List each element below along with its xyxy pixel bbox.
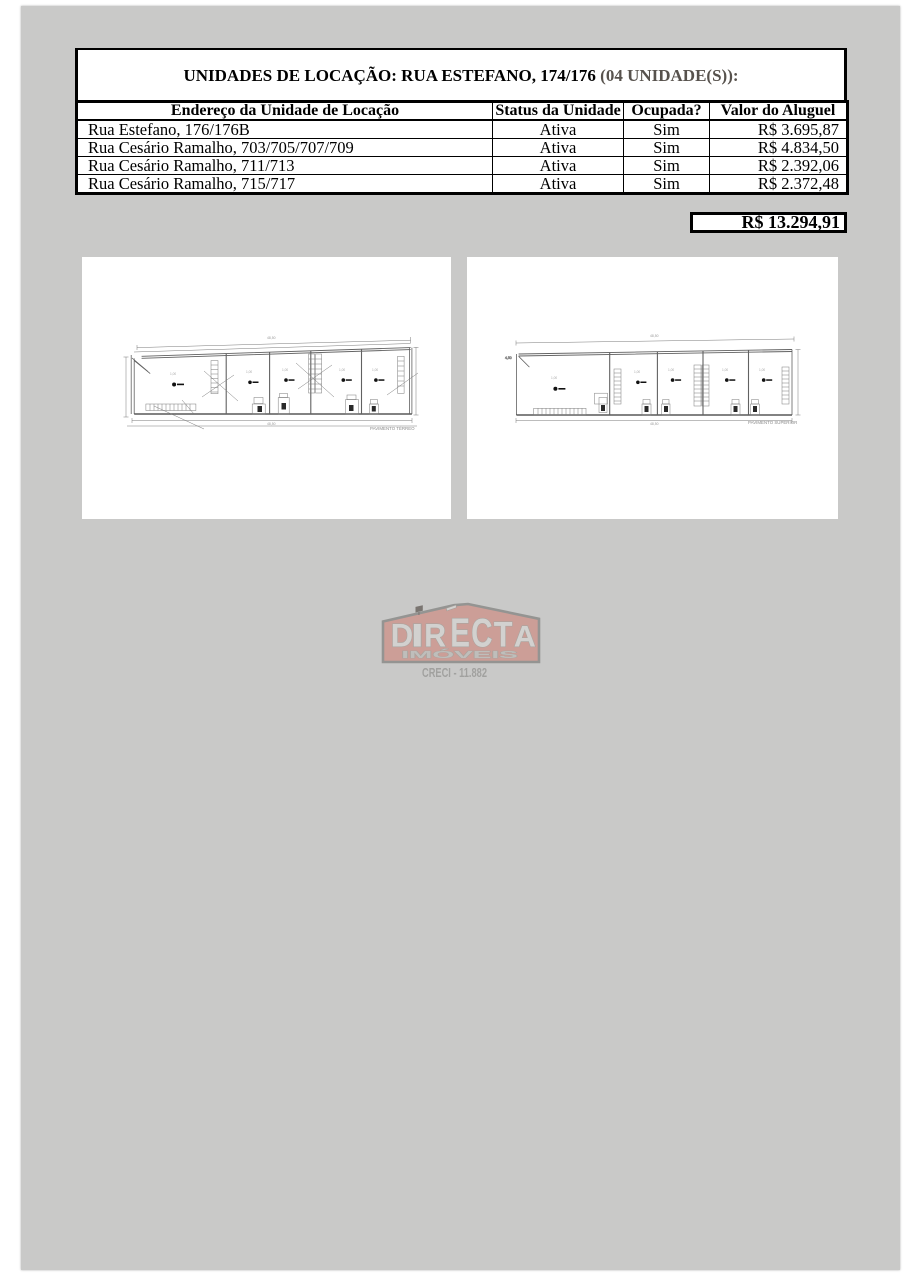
svg-text:PAVIMENTO SUPERIOR: PAVIMENTO SUPERIOR <box>748 420 797 425</box>
svg-text:48,50: 48,50 <box>267 336 276 340</box>
svg-text:1,00: 1,00 <box>551 376 557 380</box>
svg-text:48,50: 48,50 <box>267 422 276 426</box>
svg-text:PAVIMENTO TÉRREO: PAVIMENTO TÉRREO <box>370 426 415 431</box>
svg-text:CRECI - 11.882: CRECI - 11.882 <box>422 666 487 680</box>
svg-text:48,50: 48,50 <box>650 334 659 338</box>
svg-text:1,00: 1,00 <box>170 372 176 376</box>
svg-text:1,00: 1,00 <box>634 370 640 374</box>
svg-text:1,00: 1,00 <box>282 368 288 372</box>
svg-text:48,50: 48,50 <box>650 422 659 426</box>
svg-text:1,00: 1,00 <box>339 368 345 372</box>
svg-text:1,00: 1,00 <box>246 370 252 374</box>
svg-text:1,00: 1,00 <box>722 368 728 372</box>
svg-text:1,00: 1,00 <box>668 368 674 372</box>
svg-text:4,50: 4,50 <box>505 356 512 360</box>
svg-text:1,00: 1,00 <box>372 368 378 372</box>
svg-text:1,00: 1,00 <box>759 368 765 372</box>
svg-text:IMÓVEIS: IMÓVEIS <box>401 648 518 661</box>
